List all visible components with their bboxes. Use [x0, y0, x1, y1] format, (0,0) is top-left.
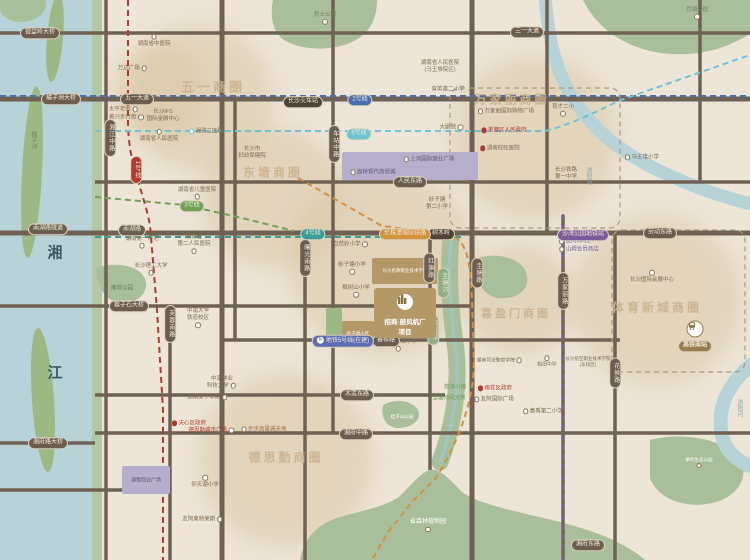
poi-marker-dot — [148, 270, 154, 276]
district-blob — [451, 54, 619, 222]
poi-marker-dot — [195, 322, 201, 328]
poi-label: 长沙理工大学 — [134, 263, 167, 277]
poi-marker-dot — [544, 355, 550, 361]
poi-label: 仰天湖小学 — [191, 475, 219, 489]
poi-label: 泰禹第二小学 — [521, 408, 563, 415]
road-label-pill[interactable]: 劳动东路 — [643, 227, 677, 239]
poi-label: 自然岭小学 — [333, 241, 369, 248]
poi-marker-dot — [362, 241, 368, 247]
poi-label: 大剧院 — [439, 124, 464, 131]
poi-marker-dot — [139, 243, 145, 249]
poi-label: 湖南女子学院 — [187, 394, 229, 401]
business-circle-label: 五一商圈 — [181, 77, 245, 96]
poi-marker-dot — [171, 420, 177, 426]
poi-marker-dot — [480, 145, 486, 151]
building-block-label: 通程商业广场 — [131, 477, 161, 484]
poi-label: 湖南省人民医院 — [140, 129, 179, 143]
bridge-label-pill[interactable]: 南湖路隧道 — [28, 223, 68, 235]
poi-marker-dot — [188, 128, 194, 134]
poi-marker-dot — [138, 114, 144, 120]
river-label-pill[interactable]: 圭塘河 — [437, 268, 449, 299]
poi-marker-dot — [156, 129, 162, 135]
poi-marker-dot — [202, 475, 208, 481]
poi-label: 山姆会员商店 — [557, 246, 599, 253]
bridge-label-pill[interactable]: 橘子洲大桥 — [41, 93, 81, 105]
road-label-pill[interactable]: 三一大道 — [510, 26, 544, 38]
poi-marker-dot — [624, 154, 630, 160]
poi-label: 育英第二小学 — [431, 86, 464, 93]
poi-label: 浏阳河 — [734, 399, 742, 417]
poi-label: 枫树山小学 — [342, 285, 370, 299]
metro-label-pill[interactable]: 长株潭城际铁路 — [379, 228, 431, 240]
poi-marker-dot — [350, 169, 356, 175]
project-site[interactable]: 招商·鼓风机厂项目 — [374, 288, 436, 338]
poi-marker-dot — [230, 383, 236, 389]
poi-label: 浏阳河 — [583, 167, 591, 185]
poi-marker-dot — [477, 385, 483, 391]
bridge-label-pill[interactable]: 银盆岭大桥 — [20, 27, 60, 39]
poi-label: 橘子洲 — [28, 131, 36, 149]
road-label-pill[interactable]: 花侯路 — [609, 358, 621, 389]
metro-label-pill[interactable]: 2号线 — [347, 94, 372, 106]
poi-marker-dot — [132, 106, 138, 112]
poi-label: 长沙市妇幼保健院 — [238, 146, 266, 160]
poi-marker-dot — [217, 516, 223, 522]
poi-label: 江 — [47, 363, 62, 383]
poi-marker-dot — [151, 34, 157, 40]
metro-label-pill[interactable]: 沙湾公园地铁站 — [557, 229, 609, 241]
hsr-station-pill[interactable]: 高铁南站 — [678, 340, 712, 352]
road-label-pill[interactable]: 人民东路 — [393, 176, 427, 188]
poi-label: 圭塘河风光带 — [432, 395, 465, 402]
poi-marker-dot — [477, 108, 483, 114]
poi-label: 马王堆小学 — [623, 154, 659, 161]
poi-marker-dot — [523, 408, 529, 414]
poi-label: 湖南省第二人民医院 — [177, 234, 210, 256]
poi-marker-dot — [425, 527, 431, 533]
poi-label: 万达广场 — [118, 65, 149, 72]
poi-label: 中南大学铁道校区 — [187, 308, 209, 330]
poi-label: 湖南省儿童医院 — [178, 187, 217, 201]
bridge-label-pill[interactable]: 湘府路大桥 — [28, 437, 68, 449]
poi-label: 桂子山公园 — [391, 414, 414, 420]
poi-marker-dot — [559, 246, 565, 252]
business-circle-label: 东塘商圈 — [243, 164, 303, 181]
poi-label: 湘雅二医院 — [187, 128, 223, 135]
poi-label: 湖南省人民医院(马王堆院区) — [421, 60, 460, 74]
poi-label: 湘 — [47, 243, 62, 263]
poi-label: 烈士公园 — [314, 12, 336, 26]
station-label-pill[interactable]: 长沙火车站 — [283, 96, 323, 108]
poi-label: 砂子塘第二小学 — [426, 197, 448, 211]
poi-label: 长沙国际会展中心 — [630, 270, 674, 284]
road-label-pill[interactable]: 湘府东路 — [571, 539, 605, 551]
road-label-pill[interactable]: 曙光南路 — [299, 239, 311, 277]
poi-label: 湖南省中医院 — [137, 34, 170, 48]
metro-label-pill[interactable]: 4号线 — [300, 228, 325, 240]
road-label-pill[interactable]: 五一大道 — [120, 93, 154, 105]
poi-label: 育才二小 — [552, 104, 574, 118]
road-label-pill[interactable]: 万家丽路 — [557, 272, 569, 310]
poi-label: 南郊公园 — [111, 285, 133, 292]
road-label-pill[interactable]: 木莲东路 — [340, 389, 374, 401]
project-name: 招商·鼓风机厂 — [384, 316, 425, 326]
poi-label: 省森林植物园 — [410, 519, 446, 535]
poi-marker-dot — [696, 463, 702, 469]
poi-label: 中南林业科技大学 — [207, 376, 238, 390]
poi-label: 悠游小镇 — [444, 384, 466, 391]
metro-label-pill[interactable]: 1号线 — [130, 156, 142, 184]
poi-marker-dot — [649, 270, 655, 276]
train-icon[interactable] — [687, 321, 704, 338]
metro-label-pill[interactable]: 6号线 — [346, 128, 371, 140]
poi-label: 德思勤城市广场 — [188, 427, 235, 434]
line-number-badge: 5 — [317, 337, 324, 344]
poi-label: 长沙IFS国际金融中心 — [146, 109, 179, 123]
metro-label-pill[interactable]: 3号线 — [179, 200, 204, 212]
poi-label: 友阿奥特莱斯 — [182, 516, 224, 523]
poi-marker-dot — [229, 427, 235, 433]
poi-label: 上河国际商业广场 — [402, 156, 455, 163]
road-label-pill[interactable]: 芙蓉南路 — [164, 305, 176, 343]
poi-marker-dot — [353, 292, 359, 298]
poi-marker-dot — [474, 396, 480, 402]
poi-marker-dot — [516, 357, 522, 363]
poi-label: 湖南第一师范 — [125, 236, 158, 250]
poi-marker-dot — [141, 65, 147, 71]
road-label-pill[interactable]: 南湖路 — [118, 224, 146, 236]
building-block-label: 长沙民政职业技术学院 — [383, 268, 428, 274]
poi-label: 长沙航空职业技术学院(东校区) — [566, 356, 611, 368]
station-label-pill[interactable]: 树木岭 — [427, 228, 455, 240]
poi-label: 友阿国际广场 — [472, 396, 514, 403]
poi-label: 长沙铁路第一中学 — [555, 167, 577, 181]
poi-label: 月湖公园 — [686, 7, 708, 21]
changsha-location-map: 通程商业广场长沙民政职业技术学院砂子塘小区五一商圈东塘商圈万家丽商圈喜盈门商圈体… — [0, 0, 750, 560]
poi-label: 步步高星城天地 — [239, 426, 286, 433]
bridge-label-pill[interactable]: 猴子石大桥 — [109, 300, 149, 312]
poi-marker-dot — [194, 194, 200, 200]
metro-label-pill[interactable]: 5地铁5号线(在建) — [312, 335, 374, 348]
poi-marker-dot — [458, 124, 464, 130]
business-circle-label: 万家丽商圈 — [474, 91, 549, 108]
poi-label: 芙蓉区人民政府 — [479, 127, 526, 134]
business-circle-label: 喜盈门商圈 — [481, 305, 551, 321]
poi-marker-dot — [560, 111, 566, 117]
poi-marker-dot — [222, 394, 228, 400]
road-label-pill[interactable]: 红旗路 — [423, 253, 435, 284]
xiang-river — [0, 0, 92, 560]
road-label-pill[interactable]: 圭塘路 — [471, 258, 483, 289]
poi-label: 稻田中学 — [537, 355, 556, 368]
poi-marker-dot — [322, 19, 328, 25]
business-circle-label: 体育新城商圈 — [612, 299, 702, 316]
poi-label: 雨花区政府 — [476, 385, 512, 392]
poi-label: 万家丽国际购物广场 — [476, 108, 534, 115]
project-name-line2: 项目 — [399, 326, 412, 336]
road-label-pill[interactable]: 湘府中路 — [339, 428, 373, 440]
poi-marker-dot — [241, 426, 247, 432]
poi-marker-dot — [191, 248, 197, 254]
poi-marker-dot — [694, 14, 700, 20]
poi-marker-dot — [349, 269, 355, 275]
road-label-pill[interactable]: 车站中路 — [328, 125, 340, 163]
poi-marker-dot — [481, 127, 487, 133]
poi-label: 砂子塘小学 — [338, 262, 366, 276]
poi-label: 黎托生态公园 — [686, 457, 713, 469]
poi-label: 湖南旺旺医院 — [478, 145, 520, 152]
poi-label: 太平老街 — [109, 106, 140, 113]
park-area — [583, 0, 750, 54]
building-icon — [397, 294, 413, 310]
poi-marker-dot — [403, 156, 409, 162]
poi-label: 湖南司法警官学院 — [477, 357, 524, 364]
road-label-pill[interactable]: 湘江中路 — [104, 119, 116, 157]
poi-label: 高桥现代商贸城 — [348, 169, 395, 176]
business-circle-label: 德思勤商圈 — [248, 449, 323, 466]
